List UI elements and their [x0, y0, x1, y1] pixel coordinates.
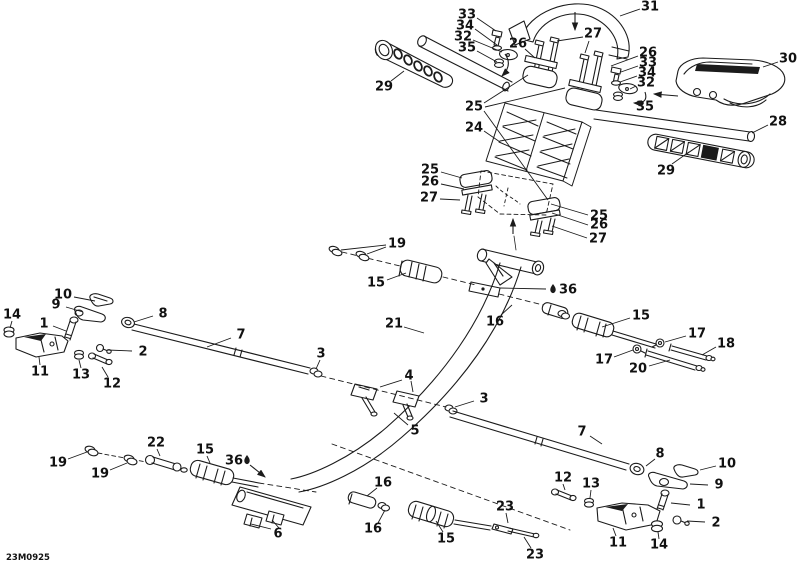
leader-line [455, 401, 474, 407]
leader-line [552, 226, 587, 238]
callout-17: 17 [688, 327, 706, 342]
leader-line [702, 347, 716, 355]
leader-line [404, 327, 424, 333]
tie-rod-right [450, 411, 645, 476]
callout-9: 9 [714, 478, 723, 493]
callout-18: 18 [717, 337, 735, 352]
leader-line [485, 88, 565, 107]
riser-block [486, 103, 591, 186]
callout-12: 12 [103, 377, 121, 392]
callout-4: 4 [404, 369, 413, 384]
callout-14: 14 [3, 308, 21, 323]
callout-16: 16 [374, 476, 392, 491]
leader-line [590, 436, 602, 444]
hidden-centerlines [98, 252, 570, 530]
callout-19: 19 [388, 237, 406, 252]
callout-8: 8 [158, 307, 167, 322]
callout-1: 1 [39, 317, 48, 332]
leader-line [620, 9, 640, 16]
leader-line [621, 66, 638, 72]
leader-line [620, 76, 637, 82]
callout-29: 29 [657, 164, 675, 179]
callout-2: 2 [711, 516, 720, 531]
steering-support-bracket [469, 248, 545, 297]
upper-drag-link [328, 245, 443, 284]
callout-30: 30 [779, 52, 797, 67]
leader-line [477, 18, 496, 31]
leader-line [690, 484, 708, 485]
grease-drop-icon [550, 284, 555, 293]
callout-23: 23 [496, 500, 514, 515]
parts-artwork [4, 4, 785, 538]
callout-21: 21 [385, 317, 403, 332]
callout-11: 11 [31, 365, 49, 380]
callout-3: 3 [479, 392, 488, 407]
callout-25: 25 [465, 100, 483, 115]
right-spindle-assembly [552, 465, 699, 532]
leader-line [387, 273, 406, 280]
callout-19: 19 [49, 456, 67, 471]
callout-27: 27 [420, 191, 438, 206]
leader-line [752, 125, 768, 133]
callout-19: 19 [91, 467, 109, 482]
callout-26: 26 [590, 218, 608, 233]
callout-20: 20 [629, 362, 647, 377]
leader-line [687, 521, 705, 522]
callout-15: 15 [437, 532, 455, 547]
callout-7: 7 [236, 328, 245, 343]
leader-line [700, 466, 716, 470]
callout-5: 5 [410, 424, 419, 439]
callout-24: 24 [465, 121, 483, 136]
leader-line [53, 326, 66, 331]
callout-15: 15 [632, 309, 650, 324]
callout-13: 13 [582, 477, 600, 492]
leader-line [500, 288, 546, 289]
leader-line [134, 316, 153, 322]
callout-9: 9 [51, 298, 60, 313]
callout-32: 32 [637, 76, 655, 91]
callout-13: 13 [72, 368, 90, 383]
callout-29: 29 [375, 80, 393, 95]
upper-clamp-left [522, 37, 559, 89]
handlebar-right-tube [594, 110, 755, 142]
leader-line [441, 172, 462, 178]
tie-rod-left [120, 316, 310, 374]
leader-line [552, 213, 588, 225]
callout-28: 28 [769, 115, 787, 130]
leader-line [506, 513, 508, 523]
column-bracket-pins [310, 368, 457, 420]
grease-point-arrow [250, 465, 265, 477]
callout-12: 12 [554, 471, 572, 486]
leader-line [671, 503, 690, 505]
callout-16: 16 [364, 522, 382, 537]
callout-35: 35 [458, 41, 476, 56]
leader-line [665, 336, 686, 342]
callout-26: 26 [509, 37, 527, 52]
leader-line [614, 350, 633, 357]
leader-line [524, 537, 531, 548]
lower-clamp-right [527, 197, 561, 237]
leader-line [649, 360, 670, 366]
callout-6: 6 [273, 527, 282, 542]
callout-10: 10 [718, 457, 736, 472]
callout-16: 16 [486, 315, 504, 330]
callout-8: 8 [655, 447, 664, 462]
callout-15: 15 [196, 443, 214, 458]
lower-clamp-left [459, 170, 493, 215]
callout-14: 14 [650, 538, 668, 553]
callout-36: 36 [559, 283, 577, 298]
leader-line [477, 51, 497, 62]
leader-line [585, 41, 589, 53]
callout-26: 26 [421, 175, 439, 190]
callout-7: 7 [577, 425, 586, 440]
right-lever-hardware [611, 67, 637, 100]
bottom-drag-link [84, 445, 538, 537]
callout-31: 31 [641, 0, 659, 15]
leader-line [440, 199, 460, 200]
callout-15: 15 [367, 276, 385, 291]
callout-17: 17 [595, 353, 613, 368]
callout-11: 11 [609, 536, 627, 551]
leader-line [646, 459, 655, 466]
steering-system-exploded-diagram: 3334323529262731263334323530282925242526… [0, 0, 800, 568]
leader-line [102, 367, 108, 377]
callout-2: 2 [138, 345, 147, 360]
callout-1: 1 [696, 498, 705, 513]
callout-22: 22 [147, 436, 165, 451]
drawing-code: 23M0925 [6, 553, 50, 563]
callout-27: 27 [589, 232, 607, 247]
insert-direction-arrow [654, 94, 678, 96]
diagram-page: 3334323529262731263334323530282925242526… [0, 0, 800, 568]
leader-line [68, 452, 87, 459]
upper-clamp-right [565, 51, 604, 111]
leader-line [557, 37, 583, 41]
grease-drop-icon [244, 455, 249, 464]
leader-line [367, 247, 386, 254]
leader-line [501, 305, 512, 315]
callout-23: 23 [526, 548, 544, 563]
callout-36: 36 [225, 454, 243, 469]
callout-27: 27 [584, 27, 602, 42]
leader-line [380, 380, 402, 387]
callout-35: 35 [636, 100, 654, 115]
leader-line [110, 463, 127, 470]
callout-3: 3 [316, 347, 325, 362]
